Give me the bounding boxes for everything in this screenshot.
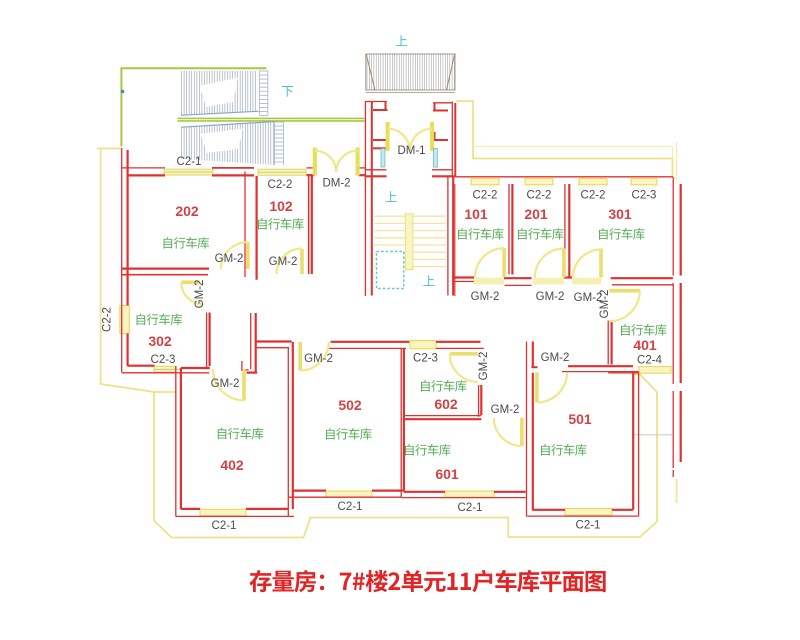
svg-text:C2-1: C2-1: [576, 520, 601, 532]
svg-text:602: 602: [434, 396, 458, 412]
svg-text:GM-2: GM-2: [478, 352, 490, 381]
svg-text:GM-2: GM-2: [471, 291, 500, 303]
svg-text:DM-1: DM-1: [397, 145, 425, 157]
svg-text:C2-1: C2-1: [338, 501, 363, 513]
svg-text:GM-2: GM-2: [599, 290, 611, 319]
svg-text:C2-1: C2-1: [458, 502, 483, 514]
svg-text:C2-2: C2-2: [527, 190, 552, 202]
svg-text:601: 601: [435, 466, 459, 482]
svg-text:301: 301: [608, 206, 632, 222]
svg-text:202: 202: [175, 203, 199, 219]
svg-text:GM-2: GM-2: [536, 291, 565, 303]
svg-text:C2-1: C2-1: [212, 520, 237, 532]
svg-text:302: 302: [148, 333, 172, 349]
svg-text:101: 101: [464, 206, 488, 222]
svg-text:201: 201: [524, 206, 548, 222]
svg-text:402: 402: [220, 457, 244, 473]
svg-text:C2-3: C2-3: [151, 354, 176, 366]
svg-text:C2-3: C2-3: [413, 353, 438, 365]
svg-text:C2-1: C2-1: [177, 156, 202, 168]
svg-text:GM-2: GM-2: [541, 352, 570, 364]
svg-text:102: 102: [269, 198, 293, 214]
svg-text:GM-2: GM-2: [304, 353, 333, 365]
svg-text:501: 501: [568, 411, 592, 427]
svg-text:GM-2: GM-2: [211, 378, 240, 390]
svg-text:GM-2: GM-2: [194, 280, 206, 309]
svg-text:C2-2: C2-2: [581, 190, 606, 202]
svg-text:C2-2: C2-2: [268, 179, 293, 191]
svg-text:C2-4: C2-4: [637, 355, 663, 367]
svg-text:GM-2: GM-2: [215, 253, 244, 265]
svg-text:C2-2: C2-2: [102, 307, 114, 332]
svg-text:401: 401: [633, 337, 657, 353]
svg-text:502: 502: [338, 397, 362, 413]
svg-text:C2-2: C2-2: [473, 190, 498, 202]
svg-text:GM-2: GM-2: [269, 256, 298, 268]
svg-text:GM-2: GM-2: [491, 404, 520, 416]
svg-text:DM-2: DM-2: [322, 178, 350, 190]
svg-text:C2-3: C2-3: [632, 190, 657, 202]
